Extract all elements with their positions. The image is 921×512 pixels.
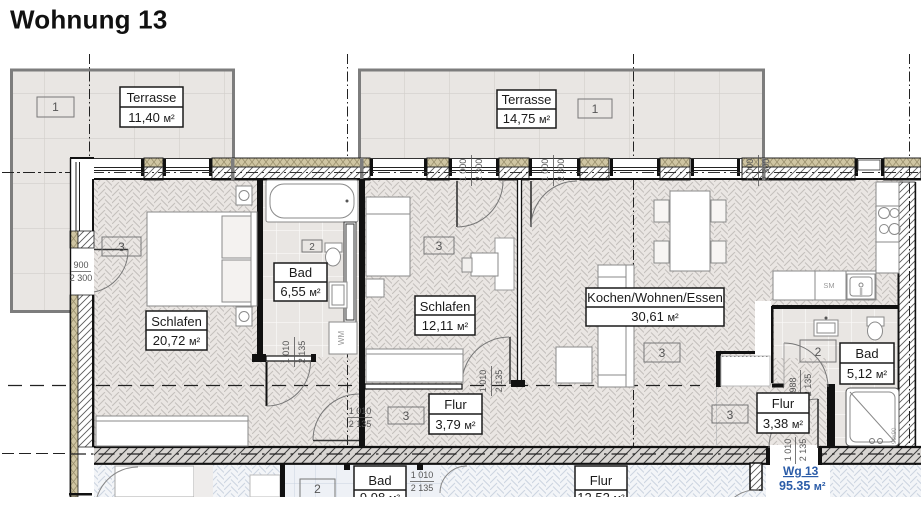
svg-text:Schlafen: Schlafen xyxy=(151,314,202,329)
svg-text:20,72 м²: 20,72 м² xyxy=(153,333,201,348)
svg-text:14,75 м²: 14,75 м² xyxy=(503,111,551,126)
svg-text:2 135: 2 135 xyxy=(297,341,307,364)
svg-text:Kochen/Wohnen/Essen: Kochen/Wohnen/Essen xyxy=(587,290,723,305)
svg-text:1 000: 1 000 xyxy=(458,159,468,182)
svg-text:30,61 м²: 30,61 м² xyxy=(631,309,679,324)
svg-text:12,11 м²: 12,11 м² xyxy=(422,318,469,333)
svg-text:2: 2 xyxy=(309,242,315,253)
svg-text:6,55 м²: 6,55 м² xyxy=(280,284,320,299)
svg-text:1 010: 1 010 xyxy=(349,406,372,416)
svg-text:1 000: 1 000 xyxy=(745,159,755,182)
svg-text:2 300: 2 300 xyxy=(70,273,93,283)
svg-text:3: 3 xyxy=(727,408,734,422)
svg-text:2 135: 2 135 xyxy=(798,439,808,462)
svg-text:1: 1 xyxy=(52,100,59,114)
svg-text:3: 3 xyxy=(403,409,410,423)
svg-text:Flur: Flur xyxy=(772,396,795,411)
svg-text:Flur: Flur xyxy=(590,473,613,488)
svg-text:Schlafen: Schlafen xyxy=(420,299,471,314)
svg-text:SM: SM xyxy=(823,281,834,290)
svg-text:Wohnung 13: Wohnung 13 xyxy=(10,5,168,35)
svg-text:2 135: 2 135 xyxy=(411,483,434,493)
svg-text:900: 900 xyxy=(73,260,88,270)
svg-text:988: 988 xyxy=(788,377,798,392)
svg-text:Wg 13: Wg 13 xyxy=(783,464,819,478)
svg-text:1: 1 xyxy=(592,102,599,116)
svg-text:11,40 м²: 11,40 м² xyxy=(128,110,175,125)
svg-text:3,79 м²: 3,79 м² xyxy=(435,417,475,432)
svg-text:2: 2 xyxy=(815,345,822,359)
svg-text:90x90: 90x90 xyxy=(892,427,898,444)
svg-text:2 135: 2 135 xyxy=(494,370,504,393)
svg-text:2 300: 2 300 xyxy=(474,159,484,182)
svg-text:1 010: 1 010 xyxy=(411,470,434,480)
svg-text:Flur: Flur xyxy=(444,397,467,412)
svg-text:Bad: Bad xyxy=(289,265,312,280)
svg-text:3,38 м²: 3,38 м² xyxy=(763,416,803,431)
svg-text:95.35 м²: 95.35 м² xyxy=(779,479,826,493)
svg-text:2 135: 2 135 xyxy=(349,419,372,429)
svg-text:1 000: 1 000 xyxy=(540,159,550,182)
svg-text:Bad: Bad xyxy=(855,346,878,361)
svg-text:Terrasse: Terrasse xyxy=(502,92,552,107)
svg-text:1 010: 1 010 xyxy=(281,341,291,364)
svg-text:3: 3 xyxy=(436,239,443,253)
svg-text:Terrasse: Terrasse xyxy=(127,90,177,105)
svg-text:Bad: Bad xyxy=(368,473,391,488)
svg-text:3: 3 xyxy=(118,240,125,254)
svg-text:WM: WM xyxy=(337,331,346,346)
svg-text:1 010: 1 010 xyxy=(478,370,488,393)
svg-text:2 300: 2 300 xyxy=(761,159,771,182)
svg-text:2: 2 xyxy=(314,482,321,496)
svg-text:1 010: 1 010 xyxy=(783,439,793,462)
svg-text:2 300: 2 300 xyxy=(556,159,566,182)
svg-text:5,12 м²: 5,12 м² xyxy=(847,366,887,381)
svg-text:3: 3 xyxy=(659,346,666,360)
